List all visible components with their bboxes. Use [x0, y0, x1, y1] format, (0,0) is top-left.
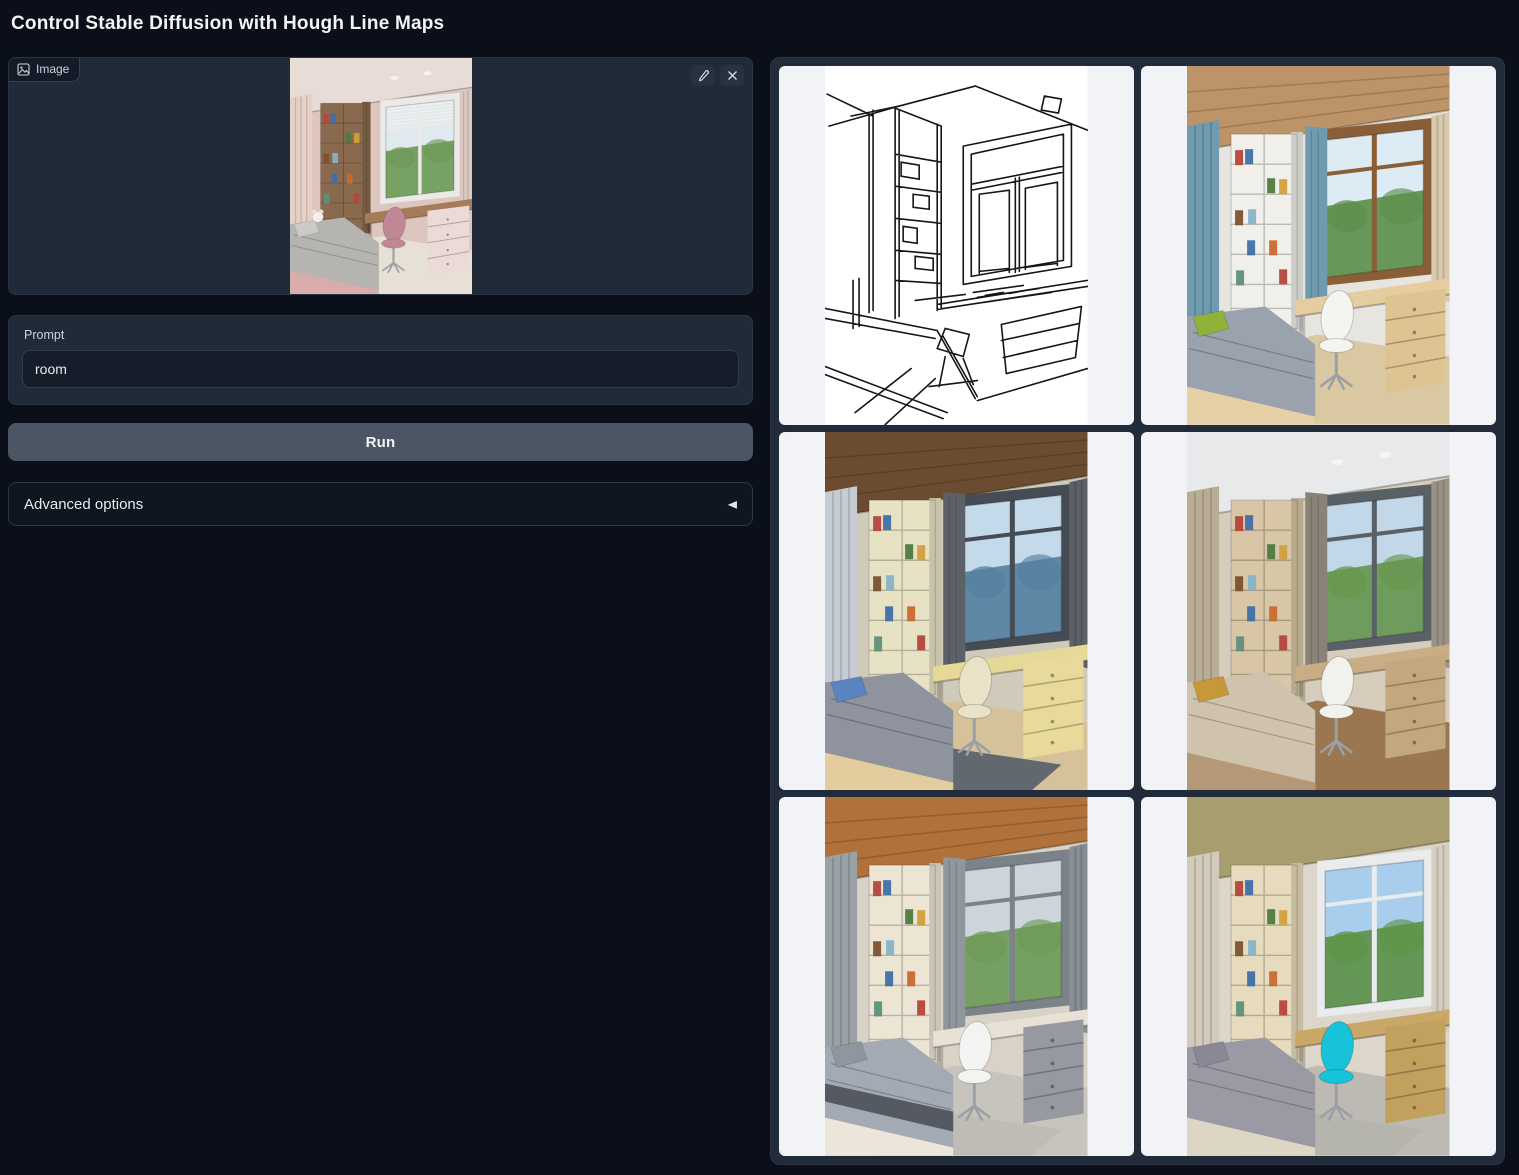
image-label-text: Image [36, 62, 69, 76]
prompt-block: Prompt [8, 315, 753, 405]
prompt-label: Prompt [24, 328, 739, 342]
accordion-collapsed-icon: ◀ [728, 498, 737, 510]
image-input-label: Image [9, 58, 80, 82]
image-icon [17, 63, 30, 76]
uploaded-image[interactable] [290, 58, 472, 295]
image-toolbar [691, 65, 744, 86]
output-gallery [770, 57, 1505, 1165]
advanced-options-accordion[interactable]: Advanced options ◀ [8, 482, 753, 526]
gallery-item-generated-room-1[interactable] [1141, 66, 1496, 425]
page-title: Control Stable Diffusion with Hough Line… [11, 10, 1505, 37]
generated-room-5-image [1187, 797, 1449, 1156]
hough-line-map-image [825, 66, 1087, 425]
prompt-input[interactable] [22, 350, 739, 388]
generated-room-4-image [825, 797, 1087, 1156]
image-input-block: Image [8, 57, 753, 295]
gallery-item-generated-room-2[interactable] [779, 432, 1134, 791]
gallery-item-hough-line-map[interactable] [779, 66, 1134, 425]
gallery-item-generated-room-4[interactable] [779, 797, 1134, 1156]
run-button[interactable]: Run [8, 423, 753, 461]
generated-room-3-image [1187, 432, 1449, 791]
advanced-options-label: Advanced options [24, 496, 143, 513]
pencil-icon [697, 69, 710, 82]
main-row: Image [8, 57, 1505, 1165]
gallery-item-generated-room-3[interactable] [1141, 432, 1496, 791]
edit-image-button[interactable] [691, 65, 715, 86]
gallery-item-generated-room-5[interactable] [1141, 797, 1496, 1156]
generated-room-1-image [1187, 66, 1449, 425]
input-column: Image [8, 57, 753, 526]
clear-image-button[interactable] [720, 65, 744, 86]
generated-room-2-image [825, 432, 1087, 791]
close-icon [727, 70, 738, 81]
